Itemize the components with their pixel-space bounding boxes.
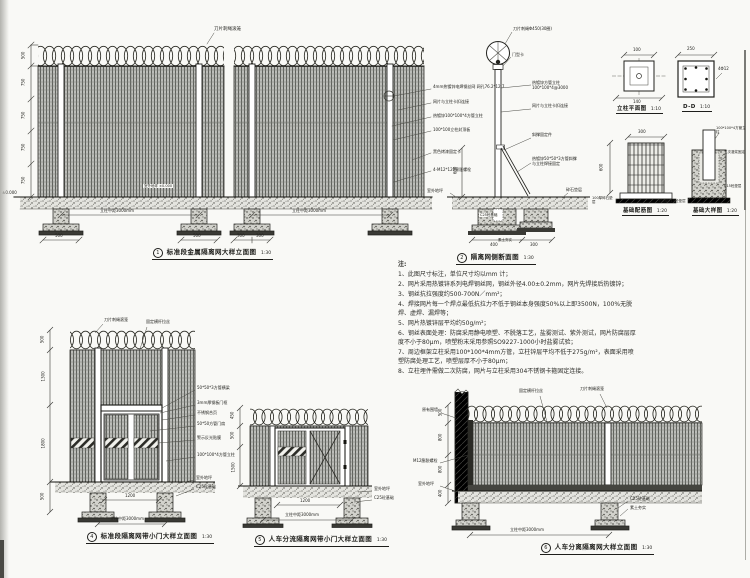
d3a-caption: 立柱平面图 1:10 xyxy=(616,104,663,114)
d2-footing-label: C25砼基础 xyxy=(479,213,498,217)
d3d-label: 100*100*4方管立柱 xyxy=(716,126,748,135)
detail-number-icon: 4 xyxy=(87,532,97,542)
d3a-caption-title: 立柱平面图 xyxy=(617,106,647,112)
d6-dim: 400 xyxy=(438,490,443,498)
note-item: 6、钢丝表面处理：防腐采用静电喷塑、不脱落工艺，盐雾测试、紫外测试，网片防腐层厚… xyxy=(398,329,638,347)
d5-caption: 5 人车分流隔离网带小门大样立面图 1:30 xyxy=(254,533,389,547)
d1-callout: 热镀锌100*100*4方管立柱 xyxy=(433,114,483,119)
d2-ground-label: 室外地坪 xyxy=(427,189,443,194)
detail-number-icon: 6 xyxy=(541,543,551,553)
d3c-caption-title: 基础配筋图 xyxy=(623,208,653,214)
d2-cushion-label: 碎石垫层 xyxy=(566,188,582,193)
d6-caption-title: 人车分离隔离网大样立面图 xyxy=(555,543,638,551)
d6-dim: 800 xyxy=(438,434,443,442)
d6-low-fence-elevation xyxy=(440,389,702,538)
d4-callout: 警示反光贴膜 xyxy=(197,436,221,441)
d2-callout: 网片与立柱卡扣连接 xyxy=(532,104,568,109)
d4-caption-title: 标准段隔离网带小门大样立面图 xyxy=(101,532,198,540)
d4-caption: 4 标准段隔离网带小门大样立面图 1:30 xyxy=(86,530,214,544)
scan-corner-mark xyxy=(0,540,4,578)
d1-callout: 黑色烤漆固定卡 xyxy=(433,150,461,155)
d5-double-gate-elevation xyxy=(237,405,372,528)
d3c-cushion-label: 100厚碎石垫层 xyxy=(592,196,616,205)
d2-dim: 300 xyxy=(530,243,538,248)
d1-dim: 750 xyxy=(21,79,26,87)
d5-dim-span: 立柱中距3000mm xyxy=(285,513,319,518)
d5-dim: 500 xyxy=(230,432,235,440)
note-item: 3、钢丝抗拉强度约500-700N／mm²； xyxy=(398,290,638,299)
d1-callout: 4mm热镀锌电焊钢丝网 网孔76.2*12.7 xyxy=(433,85,471,90)
d1-dim: 750 xyxy=(21,177,26,185)
d3b-caption: D-D 1:10 xyxy=(682,104,712,112)
note-item: 2、网片采用热镀锌系列电焊钢丝网，钢丝外径4.00±0.2mm，网片先焊接后热镀… xyxy=(398,280,638,289)
d4-ground-label: 室外地坪 xyxy=(196,476,212,481)
d3d-caption-scale: 1:20 xyxy=(727,209,737,214)
d4-dim-door: 1200 xyxy=(125,494,135,499)
d4-callout: 50*50*3方管横梁 xyxy=(197,386,230,391)
note-item: 5、网片热镀锌层平均约50g/m²； xyxy=(398,319,638,328)
d3d-caption-title: 基础大样图 xyxy=(693,208,723,214)
d3d-caption: 基础大样图 1:20 xyxy=(692,206,739,216)
d5-footing-label: C25砼基础 xyxy=(374,496,394,501)
d6-razor-label: 刀片刺绳滚笼 xyxy=(580,387,604,392)
d5-caption-scale: 1:30 xyxy=(377,538,387,543)
d6-ground-label: 室外地坪 xyxy=(418,482,434,487)
d1-caption-title: 标准段金属隔离网大样立面图 xyxy=(167,248,257,256)
d1-caption-scale: 1:30 xyxy=(261,251,271,256)
d5-dim: 450 xyxy=(230,412,235,420)
d6-dim: 800 xyxy=(438,466,443,474)
note-item: 1、此图尺寸标注，单位尺寸均以mm 计； xyxy=(398,270,638,279)
d3a-dim-top: 100 xyxy=(633,48,641,53)
d3-footing-rebar-detail xyxy=(607,134,676,203)
d3d-label: C15砼垫层 xyxy=(724,184,741,188)
d6-caption: 6 人车分离隔离网大样立面图 1:30 xyxy=(540,541,654,555)
d2-razor-label: 刀片刺绳Φ450(30圈) xyxy=(513,27,552,32)
d2-callout: 斜撑固定件 xyxy=(532,133,552,138)
d1-dim: 300 xyxy=(256,234,264,239)
d4-callout: 不锈钢合页 xyxy=(197,411,217,416)
d3-footing-post-detail xyxy=(688,130,730,203)
d3b-caption-scale: 1:10 xyxy=(700,105,710,110)
d3b-caption-title: D-D xyxy=(683,104,696,110)
d1-caption: 1 标准段金属隔离网大样立面图 1:30 xyxy=(152,246,273,260)
d1-callout: 网片与立柱卡扣连接 xyxy=(433,100,469,105)
d4-dim-span: 立柱中距3000mm xyxy=(110,517,144,522)
d4-rail-label: 固定横杆拉丝 xyxy=(146,320,170,325)
d1-standard-fence-elevation xyxy=(14,33,432,243)
d4-dim: 1300 xyxy=(42,371,47,381)
d1-razor-label: 刀片刺绳滚笼 xyxy=(214,27,241,32)
d4-callout: 50*50方管门扇 xyxy=(197,422,225,427)
detail-number-icon: 1 xyxy=(153,248,163,258)
d2-dim: 600 xyxy=(453,167,458,175)
cad-drawing-sheet: 刀片刺绳滚笼 4mm热镀锌电焊钢丝网 网孔76.2*12.7 网片与立柱卡扣连接… xyxy=(0,0,750,578)
d2-post-side-section xyxy=(447,32,590,243)
d3-mid-label: 100厚C15砼垫层 xyxy=(658,199,686,203)
d4-footing-label: C25砼基础 xyxy=(196,485,216,490)
d6-anchor-label: M12膨胀螺栓 xyxy=(413,459,438,464)
d1-callout: 100*100立柱封顶板 xyxy=(433,128,470,133)
d3c-dim-top: 300 xyxy=(638,130,646,135)
notes-title: 注: xyxy=(398,260,638,269)
d1-ground-level-2: 室外地坪 ±0.000 xyxy=(143,184,173,188)
d6-footing-label: C25砼基础 xyxy=(630,497,650,502)
d4-callout: 100*100*4方管立柱 xyxy=(197,453,235,458)
d3b-rebar-label: 4Φ12 xyxy=(718,67,729,72)
d1-dim: 500 xyxy=(21,52,26,60)
d5-ground-label: 室外地坪 xyxy=(374,487,390,492)
d6-caption-scale: 1:30 xyxy=(642,546,652,551)
d1-dim: 750 xyxy=(21,144,26,152)
d3c-dim-left: 600 xyxy=(599,164,604,172)
d2-clamp-label: 门型卡 xyxy=(512,53,524,58)
d6-dim: 500 xyxy=(438,409,443,417)
d5-dim-door: 1200 xyxy=(300,499,310,504)
d3c-caption: 基础配筋图 1:20 xyxy=(622,206,669,216)
d6-soil-label: 素土夯实 xyxy=(630,506,646,511)
d2-soil-label: 素土夯实 xyxy=(498,238,512,242)
note-item: 8、立柱埋件需做二次防腐，网片与立柱采用304不锈钢卡箍固定连接。 xyxy=(398,367,638,376)
general-notes: 注: 1、此图尺寸标注，单位尺寸均以mm 计； 2、网片采用热镀锌系列电焊钢丝网… xyxy=(398,260,638,377)
d6-dim-span: 立柱中距3000mm xyxy=(510,528,544,533)
d4-dim: 500 xyxy=(40,336,45,344)
d6-wall-label: 原有围墙 xyxy=(422,408,438,413)
d1-dim: 500 xyxy=(55,234,63,239)
d2-callout: 热镀锌50*50*3方管斜撑 与立柱焊接固定 xyxy=(532,156,578,166)
d3a-caption-scale: 1:10 xyxy=(651,107,661,112)
d5-caption-title: 人车分流隔离网带小门大样立面图 xyxy=(269,535,373,543)
d4-caption-scale: 1:30 xyxy=(202,535,212,540)
d4-dim: 1800 xyxy=(42,438,47,448)
d6-rail-label: 固定横杆拉丝 xyxy=(519,389,543,394)
d2-dim: 400 xyxy=(490,243,498,248)
d3b-dim-top: 250 xyxy=(687,47,695,52)
d5-dim: 1500 xyxy=(232,462,237,472)
d4-dim: 500 xyxy=(40,493,45,501)
d1-dim-span: 立柱中距3000mm xyxy=(292,209,326,214)
d1-dim-span: 立柱中距3000mm xyxy=(100,209,134,214)
d1-dim: 750 xyxy=(21,112,26,120)
d4-razor-label: 刀片刺绳滚笼 xyxy=(104,318,128,323)
scan-edge-shadow xyxy=(0,0,9,578)
d4-callout: 3mm厚钢板门框 xyxy=(197,401,227,406)
d3-post-plan-detail xyxy=(612,52,666,101)
d3d-label: 二次灌浆固定 xyxy=(724,150,750,154)
note-item: 4、焊接网片每一个焊点最低抗拉力不低于钢丝本身强度50%以上即3500N，100… xyxy=(398,300,638,318)
d1-dim: 500 xyxy=(193,234,201,239)
d3c-caption-scale: 1:20 xyxy=(657,209,667,214)
d2-callout: 热镀锌方管立柱 100*100*4@3000 xyxy=(532,80,574,90)
d3-post-section-dd xyxy=(675,52,722,97)
note-item: 7、周边框架立柱采用100*100*4mm方管，立柱锌层平均不低于275g/m²… xyxy=(398,348,638,366)
d1-dim: 300 xyxy=(237,234,245,239)
detail-number-icon: 5 xyxy=(255,535,265,545)
